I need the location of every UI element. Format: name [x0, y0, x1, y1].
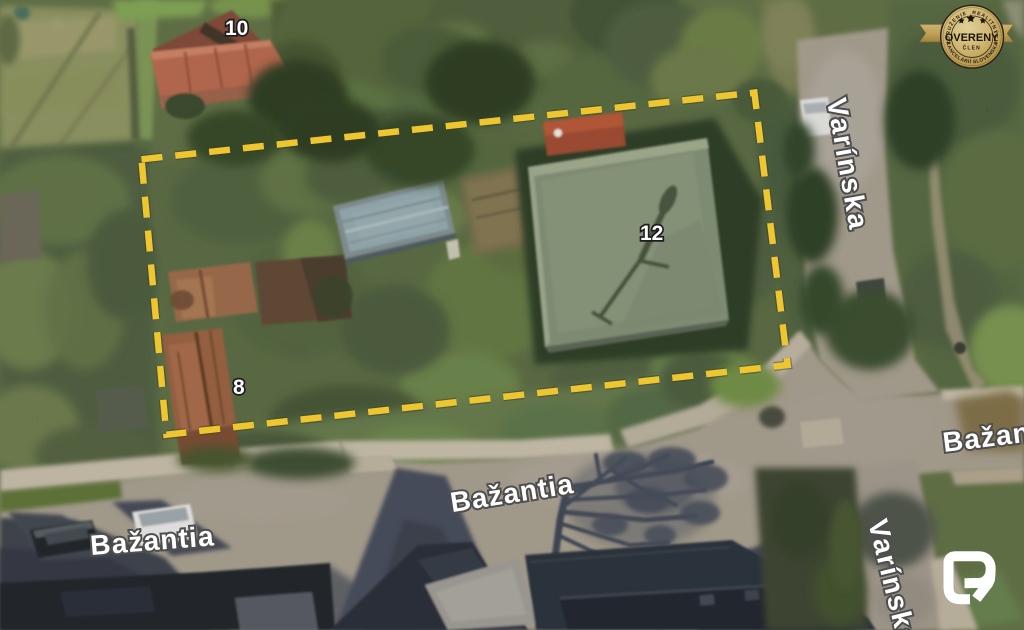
svg-text:10: 10 [225, 17, 248, 40]
svg-text:8: 8 [233, 376, 245, 399]
svg-text:OVERENÝ: OVERENÝ [945, 31, 999, 44]
svg-text:ČLEN: ČLEN [963, 44, 981, 51]
svg-text:12: 12 [640, 222, 663, 245]
